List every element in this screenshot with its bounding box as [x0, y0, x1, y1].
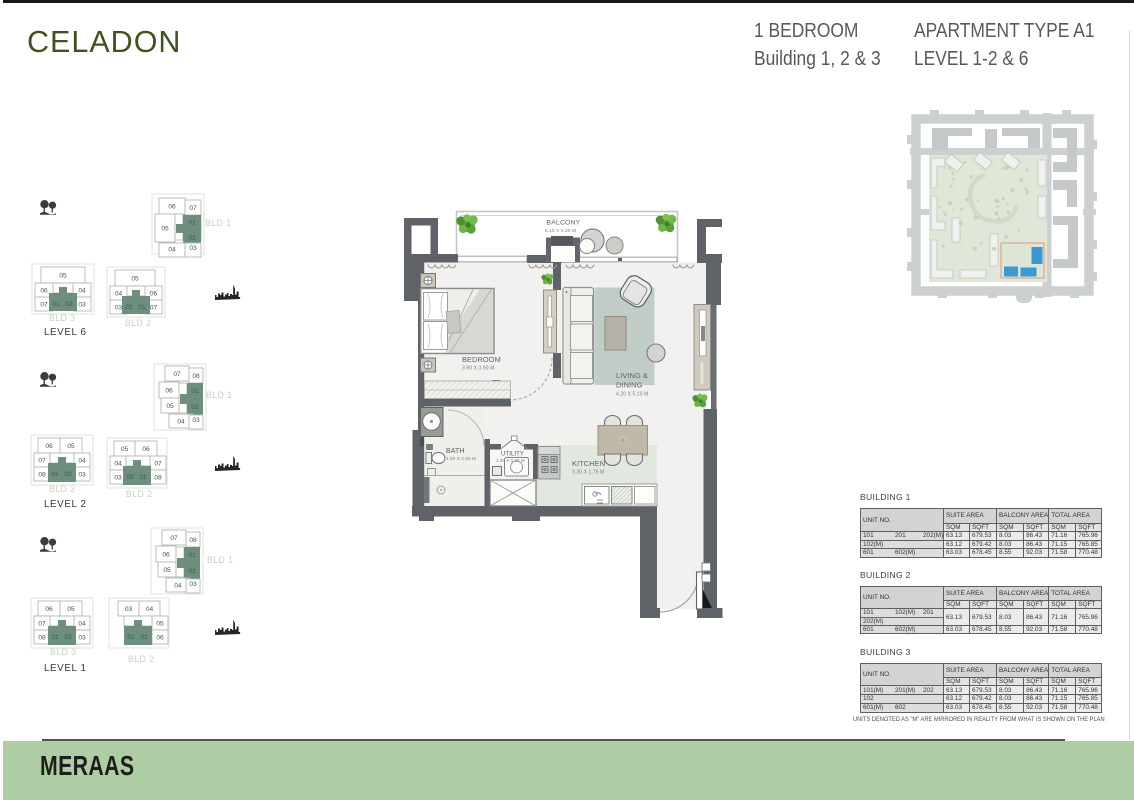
svg-text:BLD 2: BLD 2: [125, 318, 151, 328]
svg-text:4.20 X 5.10 M: 4.20 X 5.10 M: [616, 392, 648, 398]
svg-text:03: 03: [115, 304, 123, 311]
svg-text:03: 03: [192, 417, 200, 424]
svg-text:05: 05: [67, 443, 75, 450]
svg-text:08: 08: [189, 537, 197, 544]
svg-text:BLD 2: BLD 2: [128, 654, 154, 664]
svg-text:01: 01: [138, 304, 146, 311]
svg-text:BALCONY: BALCONY: [547, 220, 581, 227]
svg-text:01: 01: [188, 220, 196, 227]
svg-text:01: 01: [52, 301, 60, 308]
svg-text:04: 04: [168, 246, 176, 253]
svg-text:06: 06: [40, 287, 48, 294]
svg-text:UTILITY: UTILITY: [501, 452, 524, 458]
svg-text:BATH: BATH: [446, 448, 465, 455]
svg-text:01: 01: [51, 471, 59, 478]
svg-text:06: 06: [45, 443, 53, 450]
svg-text:04: 04: [78, 457, 86, 464]
svg-text:04: 04: [146, 606, 154, 613]
svg-text:LEVEL 6: LEVEL 6: [44, 327, 87, 338]
svg-text:03: 03: [78, 471, 86, 478]
svg-text:01: 01: [139, 474, 147, 481]
svg-text:02: 02: [64, 471, 72, 478]
svg-text:04: 04: [177, 418, 185, 425]
svg-text:05: 05: [163, 567, 171, 574]
svg-text:BLD 3: BLD 3: [50, 647, 76, 657]
svg-text:07: 07: [170, 535, 178, 542]
svg-text:02: 02: [127, 634, 135, 641]
svg-text:07: 07: [154, 460, 162, 467]
svg-text:07: 07: [189, 205, 197, 212]
svg-text:3.90 X 3.90 M: 3.90 X 3.90 M: [462, 366, 494, 372]
svg-text:1.90 X 2.85 M: 1.90 X 2.85 M: [446, 456, 476, 461]
svg-text:06: 06: [168, 203, 176, 210]
svg-text:06: 06: [142, 446, 150, 453]
svg-text:01: 01: [191, 388, 199, 395]
svg-text:02: 02: [188, 235, 196, 242]
svg-text:LEVEL 2: LEVEL 2: [44, 499, 87, 510]
svg-text:04: 04: [78, 620, 86, 627]
svg-text:03: 03: [189, 245, 197, 252]
svg-text:03: 03: [189, 581, 197, 588]
svg-text:01: 01: [140, 634, 148, 641]
svg-text:BLD 1: BLD 1: [207, 555, 233, 565]
svg-text:06: 06: [156, 634, 164, 641]
svg-text:03: 03: [114, 474, 122, 481]
svg-text:BLD 3: BLD 3: [49, 313, 75, 323]
svg-text:02: 02: [125, 304, 133, 311]
svg-text:05: 05: [59, 272, 67, 279]
svg-text:02: 02: [65, 301, 73, 308]
svg-text:05: 05: [121, 446, 129, 453]
svg-text:07: 07: [150, 304, 158, 311]
svg-text:08: 08: [38, 634, 46, 641]
svg-text:BLD 2: BLD 2: [126, 489, 152, 499]
svg-text:07: 07: [38, 620, 46, 627]
svg-text:04: 04: [78, 287, 86, 294]
svg-text:BLD 1: BLD 1: [205, 218, 231, 228]
svg-text:08: 08: [192, 373, 200, 380]
svg-text:02: 02: [64, 634, 72, 641]
svg-text:04: 04: [114, 460, 122, 467]
svg-text:08: 08: [154, 474, 162, 481]
svg-text:01: 01: [188, 552, 196, 559]
svg-text:1.30 X 0.80 M: 1.30 X 0.80 M: [496, 458, 525, 463]
svg-text:DINING: DINING: [616, 381, 643, 390]
svg-text:01: 01: [51, 634, 59, 641]
svg-text:08: 08: [38, 471, 46, 478]
svg-text:02: 02: [191, 404, 199, 411]
svg-text:6.15 X 1.25 M: 6.15 X 1.25 M: [545, 228, 576, 234]
svg-text:06: 06: [162, 551, 170, 558]
svg-text:07: 07: [173, 371, 181, 378]
svg-text:BEDROOM: BEDROOM: [462, 355, 501, 364]
svg-text:07: 07: [40, 301, 48, 308]
svg-text:LIVING &: LIVING &: [616, 371, 648, 380]
svg-text:05: 05: [166, 403, 174, 410]
svg-text:02: 02: [126, 474, 134, 481]
svg-text:KITCHEN: KITCHEN: [572, 459, 605, 468]
svg-text:03: 03: [78, 634, 86, 641]
svg-text:05: 05: [131, 275, 139, 282]
svg-text:04: 04: [174, 582, 182, 589]
svg-text:05: 05: [161, 225, 169, 232]
svg-text:03: 03: [78, 301, 86, 308]
svg-text:3.30 X 1.75 M: 3.30 X 1.75 M: [572, 470, 604, 476]
svg-text:05: 05: [156, 620, 164, 627]
svg-text:BLD 1: BLD 1: [206, 390, 232, 400]
svg-text:02: 02: [188, 568, 196, 575]
svg-text:07: 07: [38, 457, 46, 464]
svg-text:06: 06: [45, 606, 53, 613]
svg-text:BLD 3: BLD 3: [49, 484, 75, 494]
svg-text:05: 05: [67, 606, 75, 613]
svg-text:06: 06: [150, 290, 158, 297]
svg-text:06: 06: [165, 387, 173, 394]
svg-text:03: 03: [125, 606, 133, 613]
svg-text:04: 04: [115, 290, 123, 297]
svg-text:LEVEL 1: LEVEL 1: [44, 663, 87, 674]
